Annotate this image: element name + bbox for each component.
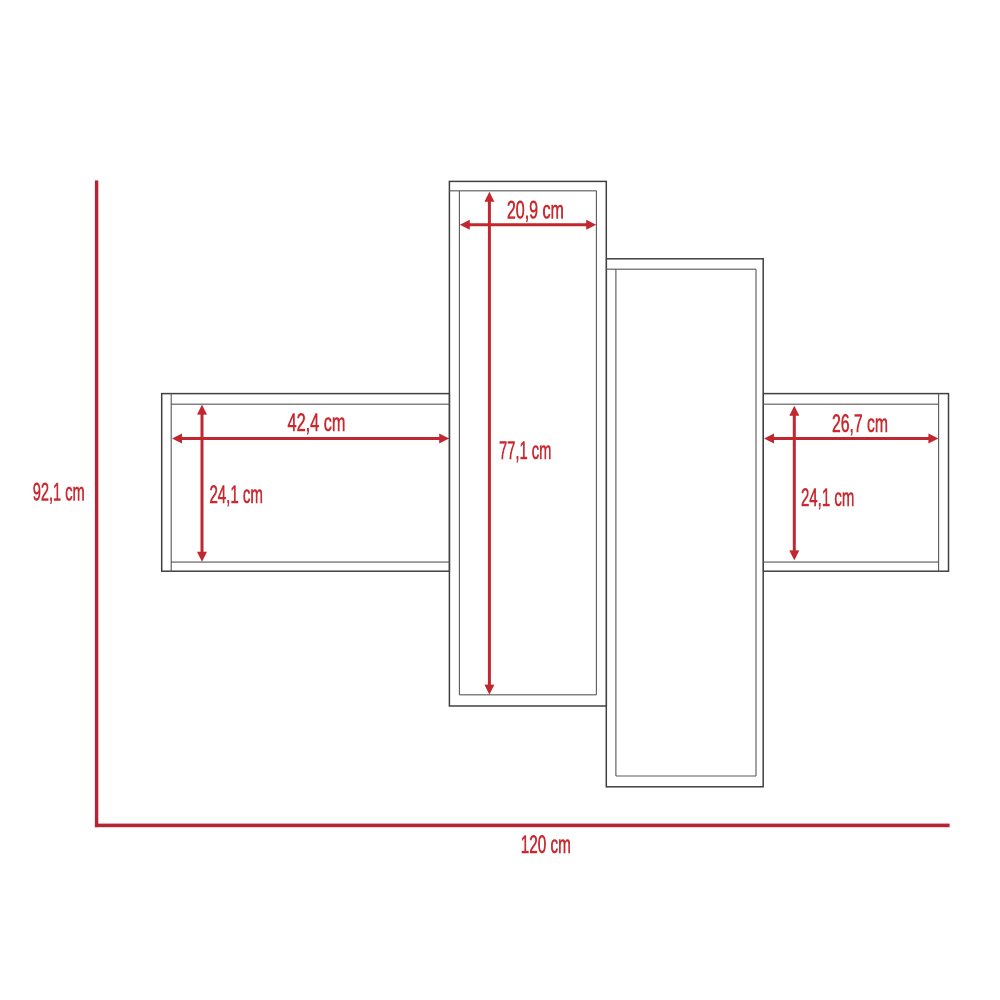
svg-text:20,9 cm: 20,9 cm: [507, 197, 564, 225]
svg-text:42,4 cm: 42,4 cm: [288, 409, 346, 437]
svg-text:26,7 cm: 26,7 cm: [832, 410, 888, 438]
svg-text:24,1 cm: 24,1 cm: [801, 484, 855, 512]
svg-text:77,1 cm: 77,1 cm: [499, 437, 552, 465]
svg-text:24,1 cm: 24,1 cm: [209, 481, 263, 509]
svg-text:120 cm: 120 cm: [521, 831, 571, 859]
svg-text:92,1 cm: 92,1 cm: [33, 479, 85, 507]
